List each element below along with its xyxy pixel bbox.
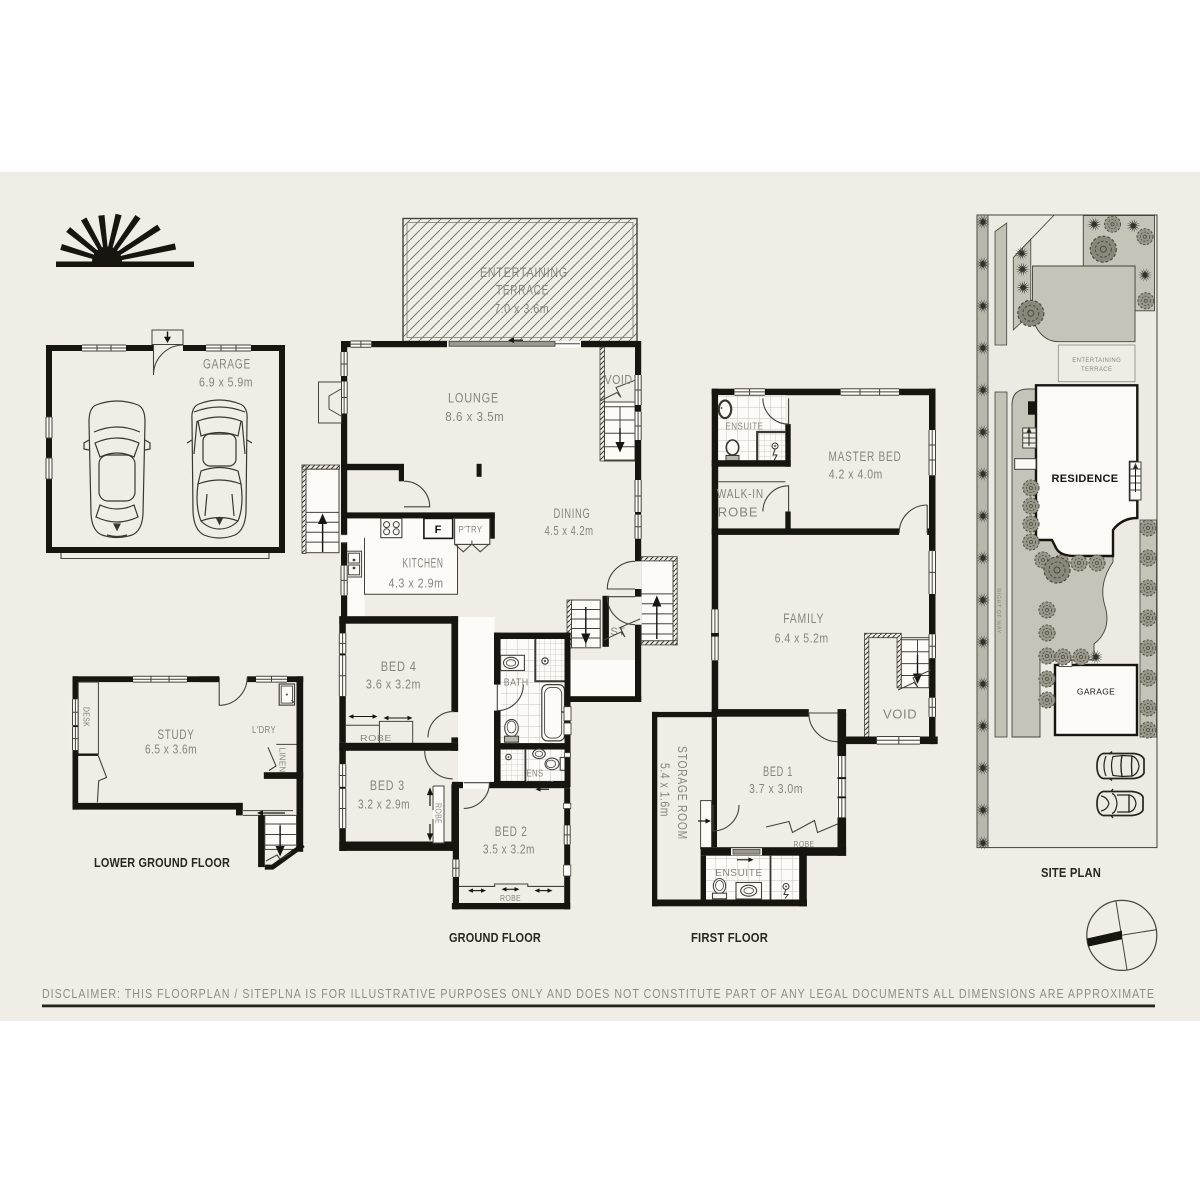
svg-text:SITE PLAN: SITE PLAN bbox=[1041, 865, 1101, 880]
svg-text:6.9 x 5.9m: 6.9 x 5.9m bbox=[199, 375, 253, 390]
svg-text:VOID: VOID bbox=[605, 373, 633, 387]
svg-text:ENSUITE: ENSUITE bbox=[726, 422, 764, 433]
svg-text:ENS: ENS bbox=[527, 769, 544, 780]
svg-text:3.7 x 3.0m: 3.7 x 3.0m bbox=[749, 781, 803, 796]
svg-text:MASTER BED: MASTER BED bbox=[829, 449, 902, 464]
svg-text:DESK: DESK bbox=[82, 707, 92, 727]
svg-text:ROBE: ROBE bbox=[360, 733, 392, 743]
svg-text:ROBE: ROBE bbox=[718, 505, 759, 520]
svg-text:BED 1: BED 1 bbox=[763, 764, 793, 779]
svg-text:DISCLAIMER: THIS FLOORPLAN / S: DISCLAIMER: THIS FLOORPLAN / SITEPLNA IS… bbox=[42, 987, 1155, 1001]
svg-text:6.4 x 5.2m: 6.4 x 5.2m bbox=[775, 631, 829, 646]
svg-text:F: F bbox=[435, 524, 442, 536]
svg-text:ROBE: ROBE bbox=[500, 893, 521, 903]
svg-text:LINEN: LINEN bbox=[278, 748, 288, 773]
svg-text:8.6 x 3.5m: 8.6 x 3.5m bbox=[445, 409, 504, 424]
svg-text:4.3 x 2.9m: 4.3 x 2.9m bbox=[389, 576, 444, 591]
svg-text:5.4 x 1.6m: 5.4 x 1.6m bbox=[658, 763, 672, 817]
svg-text:ENTERTAINING: ENTERTAINING bbox=[1072, 358, 1121, 364]
svg-text:BED 2: BED 2 bbox=[495, 824, 528, 839]
svg-text:LOUNGE: LOUNGE bbox=[448, 391, 499, 406]
svg-text:TERRACE: TERRACE bbox=[1081, 367, 1112, 373]
svg-text:3.2 x 2.9m: 3.2 x 2.9m bbox=[358, 797, 410, 812]
svg-text:LOWER GROUND FLOOR: LOWER GROUND FLOOR bbox=[94, 855, 230, 870]
svg-text:STORAGE ROOM: STORAGE ROOM bbox=[675, 746, 690, 840]
svg-text:ENSUITE: ENSUITE bbox=[715, 868, 763, 879]
svg-text:STUDY: STUDY bbox=[158, 727, 195, 742]
svg-text:VOID: VOID bbox=[883, 707, 917, 722]
svg-text:WALK-IN: WALK-IN bbox=[717, 486, 764, 501]
svg-text:ENTERTAINING: ENTERTAINING bbox=[480, 265, 568, 280]
svg-text:FIRST FLOOR: FIRST FLOOR bbox=[691, 930, 768, 945]
svg-text:6.5 x 3.6m: 6.5 x 3.6m bbox=[145, 742, 197, 757]
svg-text:RESIDENCE: RESIDENCE bbox=[1052, 473, 1119, 485]
svg-text:P'TRY: P'TRY bbox=[459, 525, 483, 535]
svg-text:BED 3: BED 3 bbox=[370, 778, 405, 793]
svg-text:3.5 x 3.2m: 3.5 x 3.2m bbox=[483, 842, 535, 857]
svg-text:4.2 x 4.0m: 4.2 x 4.0m bbox=[829, 467, 883, 482]
svg-text:7.0 x 3.6m: 7.0 x 3.6m bbox=[494, 301, 549, 316]
svg-text:DINING: DINING bbox=[554, 506, 591, 521]
svg-text:FAMILY: FAMILY bbox=[783, 611, 824, 626]
svg-text:BATH: BATH bbox=[504, 677, 529, 689]
svg-text:GARAGE: GARAGE bbox=[203, 357, 251, 372]
svg-text:GARAGE: GARAGE bbox=[1077, 687, 1115, 697]
svg-text:TERRACE: TERRACE bbox=[496, 283, 549, 298]
svg-text:BED 4: BED 4 bbox=[381, 659, 417, 674]
svg-text:L'DRY: L'DRY bbox=[252, 724, 276, 736]
svg-text:4.5 x 4.2m: 4.5 x 4.2m bbox=[545, 523, 594, 538]
svg-text:KITCHEN: KITCHEN bbox=[403, 556, 444, 571]
svg-text:3.6 x 3.2m: 3.6 x 3.2m bbox=[366, 677, 421, 692]
svg-text:GROUND FLOOR: GROUND FLOOR bbox=[449, 930, 541, 945]
svg-text:RIGHT OF WAY: RIGHT OF WAY bbox=[995, 588, 1001, 634]
svg-text:ROBE: ROBE bbox=[434, 803, 443, 824]
